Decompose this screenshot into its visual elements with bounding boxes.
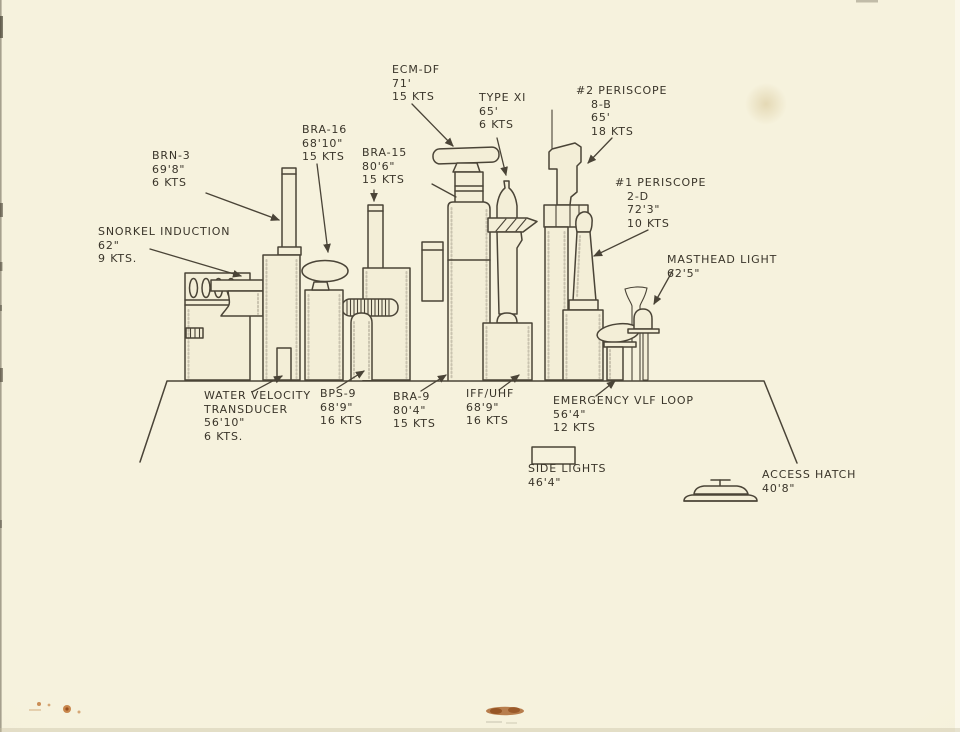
label-ecm-df: ECM-DF 71' 15 KTS [392,63,440,104]
label-periscope-2: #2 PERISCOPE 8-B 65' 18 KTS [576,84,667,138]
label-line: 2-D [615,190,706,204]
label-bra-15: BRA-15 80'6" 15 KTS [362,146,407,187]
label-line: 40'8" [762,482,856,496]
access-hatch-drawing [684,480,757,501]
label-line: EMERGENCY VLF LOOP [553,394,694,408]
label-bps-9: BPS-9 68'9" 16 KTS [320,387,363,428]
scanned-diagram-page: ECM-DF 71' 15 KTS TYPE XI 65' 6 KTS #2 P… [0,0,960,732]
label-line: ECM-DF [392,63,440,77]
label-line: 16 KTS [320,414,363,428]
label-line: 15 KTS [393,417,436,431]
label-line: 10 KTS [615,217,706,231]
label-line: TRANSDUCER [204,403,311,417]
label-line: IFF/UHF [466,387,514,401]
label-iff-uhf: IFF/UHF 68'9" 16 KTS [466,387,514,428]
label-line: 68'9" [320,401,363,415]
label-side-lights: SIDE LIGHTS 46'4" [528,462,606,489]
iff-uhf-mast [483,218,537,380]
label-line: 8-B [576,98,667,112]
label-line: 6 KTS. [204,430,311,444]
label-line: TYPE XI [479,91,526,105]
label-line: 15 KTS [362,173,407,187]
label-line: BRA-9 [393,390,436,404]
label-line: 6 KTS [479,118,526,132]
label-line: 71' [392,77,440,91]
label-bra-16: BRA-16 68'10" 15 KTS [302,123,347,164]
masthead-light [628,309,659,333]
label-line: ACCESS HATCH [762,468,856,482]
label-water-velocity: WATER VELOCITY TRANSDUCER 56'10" 6 KTS. [204,389,311,443]
label-line: 9 KTS. [98,252,230,266]
label-line: 72'3" [615,203,706,217]
label-vlf-loop: EMERGENCY VLF LOOP 56'4" 12 KTS [553,394,694,435]
label-line: 16 KTS [466,414,514,428]
label-line: 68'9" [466,401,514,415]
mast-bra15-upper [368,205,383,269]
label-access-hatch: ACCESS HATCH 40'8" [762,468,856,495]
label-line: 80'4" [393,404,436,418]
label-line: 68'10" [302,137,347,151]
mast-bps9 [351,313,372,380]
label-line: #2 PERISCOPE [576,84,667,98]
label-masthead-light: MASTHEAD LIGHT 62'5" [667,253,777,280]
label-line: #1 PERISCOPE [615,176,706,190]
label-line: 62" [98,239,230,253]
label-snorkel-induction: SNORKEL INDUCTION 62" 9 KTS. [98,225,230,266]
label-line: MASTHEAD LIGHT [667,253,777,267]
mast-bra16 [302,261,348,381]
water-velocity-transducer [277,348,291,380]
label-line: 56'4" [553,408,694,422]
label-line: BRA-15 [362,146,407,160]
label-line: 12 KTS [553,421,694,435]
label-line: 6 KTS [152,176,191,190]
label-line: 80'6" [362,160,407,174]
label-type-xi: TYPE XI 65' 6 KTS [479,91,526,132]
label-line: 15 KTS [392,90,440,104]
mast-brn3 [282,168,296,250]
label-line: 65' [479,105,526,119]
label-line: SIDE LIGHTS [528,462,606,476]
label-line: 65' [576,111,667,125]
label-line: WATER VELOCITY [204,389,311,403]
ribbed-duct [342,299,398,316]
label-line: 18 KTS [576,125,667,139]
label-brn-3: BRN-3 69'8" 6 KTS [152,149,191,190]
label-bra-9: BRA-9 80'4" 15 KTS [393,390,436,431]
label-line: 46'4" [528,476,606,490]
label-line: SNORKEL INDUCTION [98,225,230,239]
label-line: BRN-3 [152,149,191,163]
label-line: 62'5" [667,267,777,281]
label-line: 69'8" [152,163,191,177]
label-line: BRA-16 [302,123,347,137]
periscope-1 [563,212,603,380]
label-line: 56'10" [204,416,311,430]
mast-bra9-upper [422,242,443,301]
label-line: 15 KTS [302,150,347,164]
label-periscope-1: #1 PERISCOPE 2-D 72'3" 10 KTS [615,176,706,230]
mast-ecm-df [433,147,499,203]
label-line: BPS-9 [320,387,363,401]
